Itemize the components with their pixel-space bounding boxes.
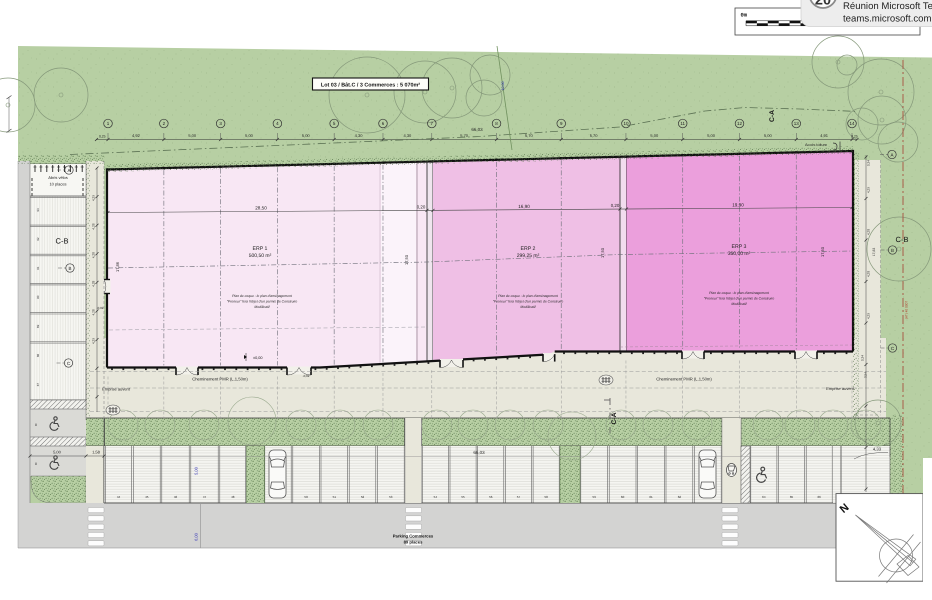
svg-text:0,34: 0,34: [861, 355, 865, 361]
svg-text:4,28: 4,28: [92, 309, 96, 315]
svg-text:5,00: 5,00: [707, 133, 716, 138]
svg-text:4,28: 4,28: [867, 271, 871, 277]
svg-text:53: 53: [389, 495, 393, 499]
svg-text:57: 57: [517, 495, 521, 499]
svg-text:89 places: 89 places: [404, 540, 424, 545]
svg-text:90: 90: [36, 295, 40, 299]
svg-text:C-A: C-A: [611, 412, 618, 424]
svg-text:5,00: 5,00: [188, 133, 197, 138]
svg-text:93: 93: [36, 208, 40, 212]
svg-text:5,70: 5,70: [590, 133, 599, 138]
svg-text:46: 46: [174, 495, 178, 499]
svg-text:58: 58: [544, 495, 548, 499]
svg-text:C-B: C-B: [896, 235, 909, 244]
svg-text:54: 54: [434, 495, 438, 499]
svg-text:A: A: [890, 152, 893, 157]
svg-text:Réunion Microsoft Te: Réunion Microsoft Te: [843, 1, 932, 12]
svg-text:50: 50: [304, 495, 308, 499]
svg-text:17,50: 17,50: [820, 246, 825, 257]
svg-text:4,28: 4,28: [92, 280, 96, 286]
svg-text:C-B: C-B: [56, 237, 69, 246]
svg-text:4,30: 4,30: [355, 133, 364, 138]
svg-text:5,00: 5,00: [764, 133, 773, 138]
svg-text:8: 8: [35, 423, 37, 427]
svg-text:Modificatif: Modificatif: [731, 302, 747, 306]
svg-text:91: 91: [36, 266, 40, 270]
svg-text:10 places: 10 places: [49, 182, 66, 187]
svg-text:ERP 3: ERP 3: [732, 244, 747, 250]
svg-text:Cheminement PMR (L.1,50m): Cheminement PMR (L.1,50m): [192, 377, 248, 382]
svg-text:44: 44: [117, 495, 121, 499]
svg-text:299,25 m²: 299,25 m²: [517, 253, 540, 259]
svg-text:5,00: 5,00: [245, 133, 254, 138]
svg-text:8: 8: [35, 462, 37, 466]
svg-text:Lot 03 / Bât.C / 3 Commerces :: Lot 03 / Bât.C / 3 Commerces : 5 070m²: [321, 81, 420, 88]
svg-text:0,20: 0,20: [417, 204, 426, 209]
svg-text:5,00: 5,00: [650, 133, 659, 138]
svg-text:10,00: 10,00: [501, 82, 505, 91]
svg-text:48: 48: [231, 495, 235, 499]
svg-text:66,03: 66,03: [471, 127, 483, 132]
svg-text:64: 64: [762, 495, 766, 499]
svg-text:60: 60: [621, 495, 625, 499]
svg-text:66: 66: [818, 495, 822, 499]
svg-text:(AT) 40 0007: (AT) 40 0007: [905, 301, 909, 320]
svg-text:±0,00: ±0,00: [253, 356, 262, 360]
svg-text:51: 51: [333, 495, 337, 499]
svg-text:4,28: 4,28: [867, 229, 871, 235]
svg-text:4,30: 4,30: [403, 133, 412, 138]
svg-text:C-A: C-A: [769, 110, 776, 122]
svg-text:Emprise auvent: Emprise auvent: [826, 386, 855, 391]
svg-text:47: 47: [203, 495, 207, 499]
svg-text:Modificatif: Modificatif: [520, 305, 536, 309]
svg-text:61: 61: [649, 495, 653, 499]
svg-text:3,54: 3,54: [864, 372, 868, 378]
svg-text:"Preneur" fera l'objet d'un pe: "Preneur" fera l'objet d'un permis de Co…: [493, 300, 564, 304]
svg-text:28,50: 28,50: [255, 206, 267, 211]
svg-text:5,00: 5,00: [302, 133, 311, 138]
svg-text:4,29: 4,29: [867, 187, 871, 193]
svg-text:0,20: 0,20: [611, 203, 620, 208]
svg-text:-0,02: -0,02: [97, 306, 104, 310]
svg-text:4,29: 4,29: [92, 338, 96, 344]
svg-text:13: 13: [794, 121, 800, 126]
svg-text:17,50: 17,50: [404, 254, 409, 265]
svg-text:"Preneur" fera l'objet d'un pe: "Preneur" fera l'objet d'un permis de Co…: [704, 297, 775, 301]
svg-text:12: 12: [737, 121, 743, 126]
svg-text:6,00: 6,00: [194, 532, 199, 541]
svg-text:5,00: 5,00: [194, 466, 199, 475]
svg-text:4,33: 4,33: [873, 447, 882, 452]
svg-text:4,28: 4,28: [92, 252, 96, 258]
svg-text:45: 45: [145, 495, 149, 499]
svg-text:11: 11: [680, 121, 685, 126]
svg-text:Accès toiture: Accès toiture: [805, 143, 827, 147]
svg-text:66,03: 66,03: [473, 450, 485, 455]
svg-text:17,86: 17,86: [115, 261, 120, 272]
svg-text:56: 56: [489, 495, 493, 499]
svg-text:Cheminement PMR (L.1,50m): Cheminement PMR (L.1,50m): [656, 377, 712, 382]
svg-text:Emprise auvent: Emprise auvent: [102, 387, 131, 392]
svg-text:ERP 1: ERP 1: [253, 246, 268, 252]
svg-text:87: 87: [36, 383, 40, 387]
svg-text:19,90: 19,90: [732, 203, 744, 208]
svg-text:ERP 2: ERP 2: [521, 246, 536, 252]
svg-text:20: 20: [815, 0, 831, 9]
svg-text:4,91: 4,91: [820, 133, 829, 138]
svg-text:Abris vélos: Abris vélos: [48, 175, 68, 180]
svg-text:350,00 m²: 350,00 m²: [728, 251, 751, 257]
svg-text:4,29: 4,29: [92, 195, 96, 201]
svg-text:Modificatif: Modificatif: [254, 305, 270, 309]
svg-text:Parking Commerces: Parking Commerces: [393, 534, 434, 539]
svg-text:4,28: 4,28: [92, 223, 96, 229]
svg-text:0,34: 0,34: [867, 160, 871, 166]
svg-text:16,90: 16,90: [518, 204, 530, 209]
svg-text:5,00: 5,00: [53, 450, 62, 455]
svg-text:52: 52: [361, 495, 365, 499]
svg-text:88: 88: [36, 354, 40, 358]
svg-text:Plan de coque : le plan d'amén: Plan de coque : le plan d'aménagement: [498, 294, 559, 298]
svg-text:A: A: [67, 168, 70, 173]
svg-text:92: 92: [36, 237, 40, 241]
svg-text:55: 55: [461, 495, 465, 499]
svg-text:62: 62: [678, 495, 682, 499]
svg-text:89: 89: [36, 324, 40, 328]
svg-text:Plan de coque : le plan d'amén: Plan de coque : le plan d'aménagement: [232, 294, 293, 298]
svg-text:17,50: 17,50: [600, 247, 605, 258]
svg-text:"Preneur" fera l'objet d'un pe: "Preneur" fera l'objet d'un permis de Co…: [227, 300, 298, 304]
svg-text:65: 65: [790, 495, 794, 499]
svg-text:14: 14: [849, 121, 855, 126]
svg-text:B: B: [68, 266, 71, 271]
svg-text:B: B: [891, 248, 894, 253]
svg-text:0,25: 0,25: [99, 134, 106, 138]
svg-text:1,58: 1,58: [92, 450, 101, 455]
svg-text:500,50 m²: 500,50 m²: [249, 253, 272, 259]
svg-text:teams.microsoft.com: teams.microsoft.com: [843, 13, 932, 24]
svg-text:4,92: 4,92: [132, 133, 141, 138]
svg-text:17,83: 17,83: [872, 248, 876, 257]
svg-text:4,29: 4,29: [867, 313, 871, 319]
svg-text:0,25: 0,25: [851, 134, 858, 138]
svg-text:Plan de coque : le plan d'amén: Plan de coque : le plan d'aménagement: [709, 291, 770, 295]
svg-text:0m: 0m: [741, 12, 748, 19]
svg-text:59: 59: [593, 495, 597, 499]
svg-text:-0,02: -0,02: [303, 374, 310, 378]
